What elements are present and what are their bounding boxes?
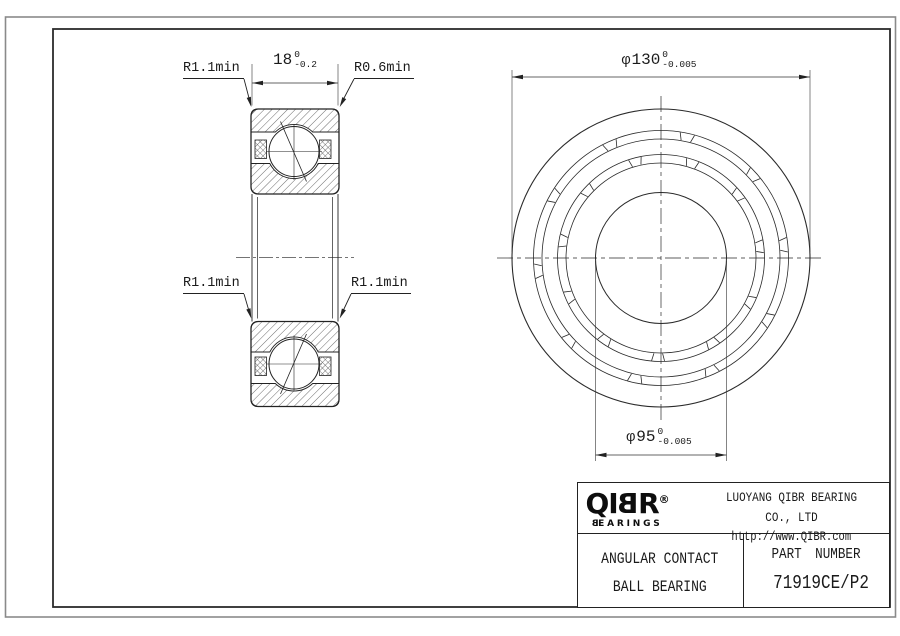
cross-section-view bbox=[236, 109, 354, 407]
callout-radius-top-right: R0.6min bbox=[354, 61, 414, 79]
cage-section-right bbox=[320, 140, 332, 159]
leader-arrowhead bbox=[246, 308, 251, 318]
logo-wordmark: QIBR® bbox=[586, 485, 670, 519]
title-block-header-row: QIBR® BEARINGS LUOYANG QIBR BEARING CO.,… bbox=[578, 483, 889, 534]
part-number-label: PART NUMBER bbox=[771, 542, 860, 568]
leader-arrowhead bbox=[340, 309, 346, 319]
arrowhead bbox=[799, 75, 810, 80]
od-tol-lower: -0.005 bbox=[662, 60, 696, 70]
section-top-half bbox=[251, 109, 339, 194]
registered-trademark-icon: ® bbox=[659, 493, 670, 506]
dimension-text-width: 180-0.2 bbox=[250, 50, 340, 70]
front-view bbox=[497, 96, 825, 424]
part-number-cell: PART NUMBER 71919CE/P2 bbox=[744, 533, 889, 607]
callout-radius-mid-left: R1.1min bbox=[183, 276, 244, 294]
logo-sub-post: EARINGS bbox=[598, 519, 662, 529]
leader-arrowhead bbox=[247, 97, 252, 107]
width-value: 18 bbox=[273, 51, 292, 69]
bore-value: 95 bbox=[636, 428, 655, 446]
logo-mirrored-b: B bbox=[618, 489, 638, 519]
leader-arrowhead bbox=[340, 97, 347, 107]
logo-text-pre: QI bbox=[586, 487, 618, 520]
diameter-symbol: φ bbox=[626, 429, 635, 446]
diameter-symbol: φ bbox=[621, 52, 630, 69]
width-tol-lower: -0.2 bbox=[294, 60, 317, 70]
company-logo: QIBR® BEARINGS bbox=[586, 485, 670, 529]
product-description-cell: ANGULAR CONTACT BALL BEARING bbox=[578, 533, 744, 607]
title-block: QIBR® BEARINGS LUOYANG QIBR BEARING CO.,… bbox=[577, 482, 890, 608]
product-line2: BALL BEARING bbox=[613, 573, 707, 601]
part-number-value: 71919CE/P2 bbox=[773, 568, 869, 599]
product-line1: ANGULAR CONTACT bbox=[601, 545, 718, 573]
od-value: 130 bbox=[631, 51, 660, 69]
arrowhead bbox=[253, 81, 264, 86]
callout-radius-mid-right: R1.1min bbox=[351, 276, 411, 294]
cage-section-left bbox=[255, 140, 267, 159]
logo-sub-mirrored-b: B bbox=[589, 519, 599, 529]
arrowhead bbox=[596, 453, 607, 458]
section-bottom-half bbox=[251, 322, 339, 407]
logo-text-post: R bbox=[638, 487, 659, 520]
company-name: LUOYANG QIBR BEARING CO., LTD bbox=[711, 488, 871, 528]
dimension-text-bore-diameter: φ950-0.005 bbox=[605, 427, 713, 447]
arrowhead bbox=[716, 453, 727, 458]
callout-radius-top-left: R1.1min bbox=[183, 61, 244, 79]
cage-section-left bbox=[255, 357, 267, 376]
cage-section-right bbox=[320, 357, 332, 376]
engineering-drawing-page: { "page": { "background": "#ffffff", "li… bbox=[0, 0, 900, 636]
dimension-text-outer-diameter: φ1300-0.005 bbox=[605, 50, 713, 70]
arrowhead bbox=[512, 75, 523, 80]
logo-subtext: BEARINGS bbox=[586, 519, 670, 529]
bore-tol-lower: -0.005 bbox=[658, 437, 692, 447]
dimension-width-18 bbox=[252, 64, 338, 106]
arrowhead bbox=[327, 81, 338, 86]
